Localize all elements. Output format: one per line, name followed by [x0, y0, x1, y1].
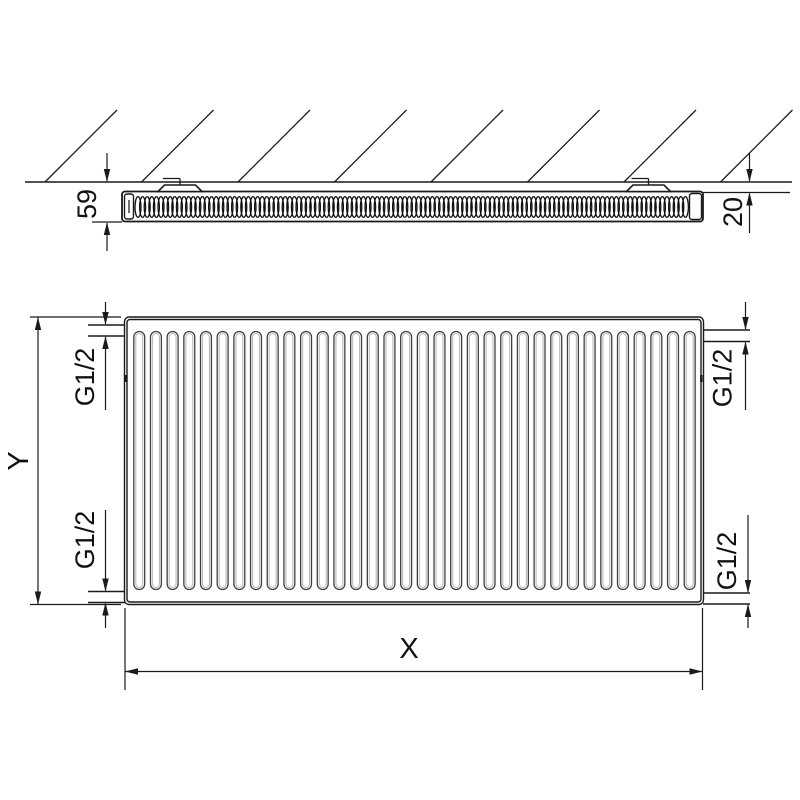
wall-brackets	[158, 179, 671, 192]
arrowhead	[102, 579, 108, 592]
bracket	[158, 185, 202, 192]
arrowhead	[745, 604, 751, 617]
arrowhead	[745, 580, 751, 593]
connection-stub-top-left	[88, 325, 125, 336]
height-label: Y	[3, 451, 35, 470]
connection-stub-bottom-right	[703, 593, 750, 604]
arrowhead	[102, 336, 108, 349]
wall-hatching	[45, 110, 793, 182]
hatch-line	[335, 110, 407, 182]
arrowhead	[104, 169, 110, 182]
hatch-line	[624, 110, 696, 182]
arrowhead	[35, 592, 41, 605]
arrowhead	[104, 222, 110, 235]
drawing-canvas: 59 20 G1/2	[0, 0, 800, 800]
bracket	[627, 185, 671, 192]
g12-top-left-label: G1/2	[70, 348, 100, 407]
arrowhead	[102, 312, 108, 325]
hatch-line	[721, 110, 793, 182]
arrowhead	[125, 668, 138, 674]
connection-stub-bottom-left	[88, 592, 125, 603]
connection-stub-top-right	[703, 330, 750, 342]
dimension-conn-bottom-right: G1/2	[712, 515, 748, 628]
g12-bottom-left-label: G1/2	[70, 511, 100, 570]
front-panel-inner	[127, 320, 701, 603]
hatch-line	[238, 110, 310, 182]
dimension-depth-59: 59	[72, 153, 122, 251]
dimension-conn-top-left: G1/2	[70, 302, 106, 410]
arrowhead	[742, 342, 748, 355]
dimension-width-x: X	[125, 608, 703, 690]
dimension-height-y: Y	[3, 317, 121, 605]
top-view: 59 20	[25, 110, 793, 251]
dimension-conn-top-right: G1/2	[708, 302, 746, 410]
dimension-wall-gap-20: 20	[703, 153, 790, 233]
radiator-technical-drawing: 59 20 G1/2	[0, 0, 800, 800]
hatch-line	[431, 110, 503, 182]
wall-gap-label: 20	[718, 197, 748, 227]
hatch-line	[142, 110, 214, 182]
arrowhead	[35, 317, 41, 330]
arrowhead	[690, 668, 703, 674]
depth-label: 59	[72, 189, 102, 219]
arrowhead	[746, 169, 752, 182]
dimension-conn-bottom-left: G1/2	[70, 510, 106, 628]
arrowhead	[742, 317, 748, 330]
g12-bottom-right-label: G1/2	[712, 532, 742, 591]
width-label: X	[399, 633, 418, 665]
right-end-cap	[690, 194, 702, 220]
g12-top-right-label: G1/2	[708, 349, 738, 408]
hatch-line	[528, 110, 600, 182]
front-view: G1/2 G1/2 G1/2 G1/2 Y	[3, 302, 750, 690]
